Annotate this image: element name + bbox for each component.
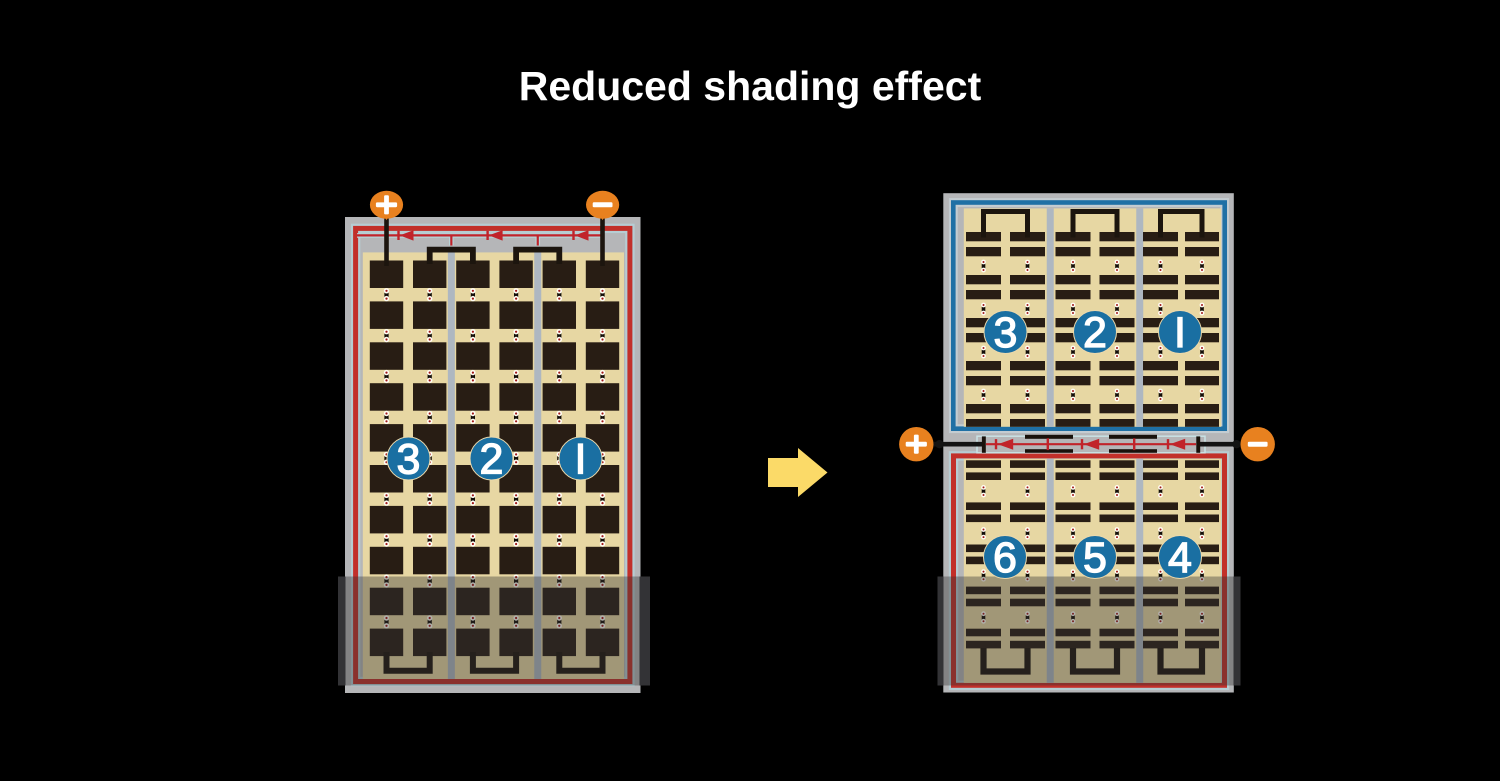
svg-text:3: 3: [397, 436, 421, 484]
svg-text:2: 2: [1083, 309, 1107, 357]
svg-text:2: 2: [480, 436, 504, 484]
svg-text:4: 4: [1168, 534, 1192, 582]
svg-text:3: 3: [994, 309, 1018, 357]
svg-text:5: 5: [1083, 534, 1107, 582]
svg-text:I: I: [1174, 309, 1186, 357]
svg-text:I: I: [575, 436, 587, 484]
svg-text:6: 6: [993, 534, 1017, 582]
